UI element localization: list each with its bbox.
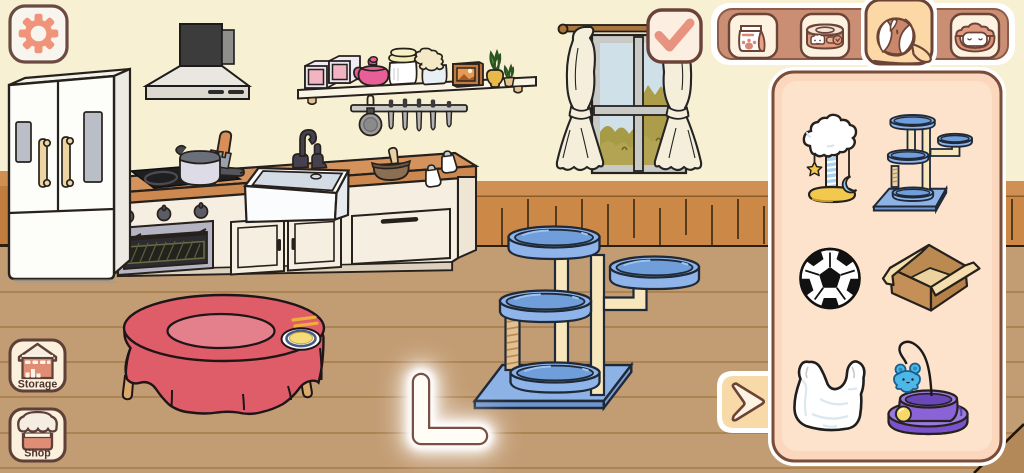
svg-text:Shop: Shop: [24, 448, 51, 460]
svg-text:Storage: Storage: [18, 379, 58, 391]
